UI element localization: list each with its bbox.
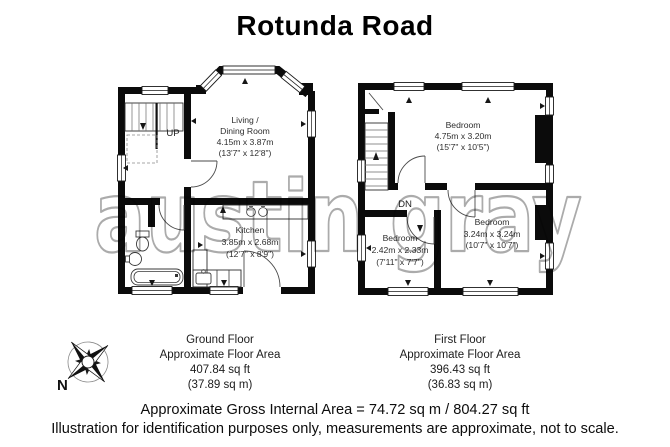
ground-floor-caption-name: Ground Floor <box>125 333 315 348</box>
footer-notes: Approximate Gross Internal Area = 74.72 … <box>0 401 670 439</box>
chimney-breast <box>535 115 546 163</box>
ground-floor-caption-area-label: Approximate Floor Area <box>125 348 315 363</box>
floorplan-page: Rotunda Road <box>0 0 670 447</box>
first-floor-caption-name: First Floor <box>365 333 555 348</box>
living-room-size-metric: 4.15m x 3.87m <box>217 137 274 147</box>
first-floor-caption-area-label: Approximate Floor Area <box>365 348 555 363</box>
first-floor-caption-area-ft: 396.43 sq ft <box>365 363 555 378</box>
window <box>546 165 554 183</box>
window <box>394 83 424 91</box>
window <box>210 287 238 295</box>
bedroom-main-name: Bedroom <box>446 120 481 130</box>
compass-rose-icon: N <box>45 328 125 400</box>
window <box>200 70 221 91</box>
stairs-down-label: DN <box>398 199 412 210</box>
window <box>463 288 518 296</box>
first-floor-plan: DN Bedroom 4.75m x 3.20m (15'7" x 10'5")… <box>350 55 570 305</box>
kitchen-sink <box>196 270 211 284</box>
kitchen-label: Kitchen 3.85m x 2.68m (12'7" x 8'9") <box>222 225 279 259</box>
first-floor-caption-area-m: (36.83 sq m) <box>365 378 555 393</box>
ground-floor-caption-area-m: (37.89 sq m) <box>125 378 315 393</box>
living-room-door <box>191 161 217 187</box>
bathtub <box>131 269 183 285</box>
stairs-direction-arrow <box>140 123 146 130</box>
first-floor-caption: First Floor Approximate Floor Area 396.4… <box>365 333 555 393</box>
window <box>308 111 316 137</box>
window <box>546 243 554 269</box>
bathroom-fixtures <box>126 231 184 285</box>
compass-north-label: N <box>57 377 68 394</box>
chimney-breast <box>535 205 546 240</box>
window <box>132 287 172 295</box>
living-room-label: Living / Dining Room 4.15m x 3.87m (13'7… <box>217 115 274 158</box>
bedroom-main-door <box>398 156 425 183</box>
bathroom-door <box>159 205 184 230</box>
bedroom-small-name: Bedroom <box>383 233 418 243</box>
bedroom-second-size-metric: 3.24m x 3.24m <box>464 229 521 239</box>
window <box>358 160 366 182</box>
ground-interior-walls <box>118 94 308 287</box>
ground-windows <box>118 66 316 295</box>
bedroom-second-name: Bedroom <box>475 217 510 227</box>
living-room-size-imperial: (13'7" x 12'8") <box>219 148 272 158</box>
bedroom-second-label: Bedroom 3.24m x 3.24m (10'7" x 10'7") <box>464 217 521 250</box>
window <box>142 87 168 95</box>
hob <box>247 207 268 217</box>
bedroom-main-label: Bedroom 4.75m x 3.20m (15'7" x 10'5") <box>435 120 492 152</box>
window <box>462 83 514 91</box>
ground-floor-plan: UP <box>105 55 330 320</box>
stairs-direction-arrow <box>373 152 379 160</box>
bedroom-main-size-imperial: (15'7" x 10'5") <box>437 142 490 152</box>
kitchen-size-metric: 3.85m x 2.68m <box>222 237 279 247</box>
stairs-up-label: UP <box>166 128 179 139</box>
cupboard-door <box>369 93 383 110</box>
window <box>281 71 305 92</box>
living-room-name-2: Dining Room <box>220 126 270 136</box>
bedroom-second-door <box>448 190 475 217</box>
page-title: Rotunda Road <box>0 10 670 42</box>
bedroom-main-size-metric: 4.75m x 3.20m <box>435 131 492 141</box>
gross-internal-area: Approximate Gross Internal Area = 74.72 … <box>0 401 670 420</box>
stairs <box>365 123 388 190</box>
window <box>388 288 428 296</box>
bedroom-small-size-metric: 2.42m x 2.33m <box>372 245 429 255</box>
window <box>546 97 554 115</box>
disclaimer: Illustration for identification purposes… <box>0 420 670 439</box>
kitchen-size-imperial: (12'7" x 8'9") <box>226 249 274 259</box>
window <box>308 241 316 267</box>
kitchen-name: Kitchen <box>236 225 265 235</box>
bedroom-second-size-imperial: (10'7" x 10'7") <box>466 240 519 250</box>
living-room-name-1: Living / <box>231 115 259 125</box>
window <box>358 235 366 261</box>
window-markers <box>123 78 306 286</box>
wash-basin <box>126 253 142 266</box>
ground-exterior-walls <box>118 70 315 294</box>
toilet <box>136 231 149 251</box>
bedroom-small-size-imperial: (7'11" x 7'7") <box>376 257 424 267</box>
ground-floor-caption: Ground Floor Approximate Floor Area 407.… <box>125 333 315 393</box>
window <box>223 66 275 74</box>
ground-floor-caption-area-ft: 407.84 sq ft <box>125 363 315 378</box>
bedroom-small-label: Bedroom 2.42m x 2.33m (7'11" x 7'7") <box>372 233 429 267</box>
